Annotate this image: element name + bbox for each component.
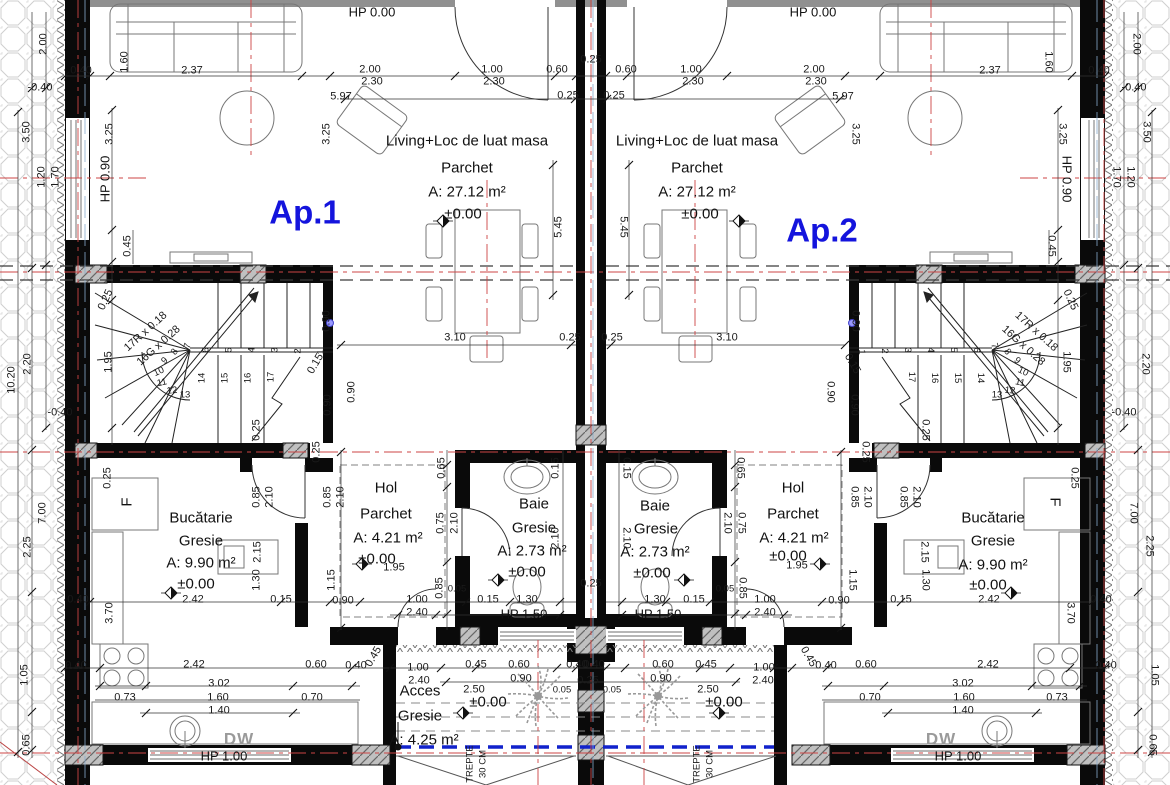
walls bbox=[65, 0, 1105, 785]
floor-plan: HP 0.00HP 0.002.002.00-0.40-0.400.400.40… bbox=[0, 0, 1170, 785]
staircase-left bbox=[95, 283, 333, 443]
plan-linework bbox=[0, 0, 1170, 785]
staircase-right bbox=[849, 283, 1087, 443]
